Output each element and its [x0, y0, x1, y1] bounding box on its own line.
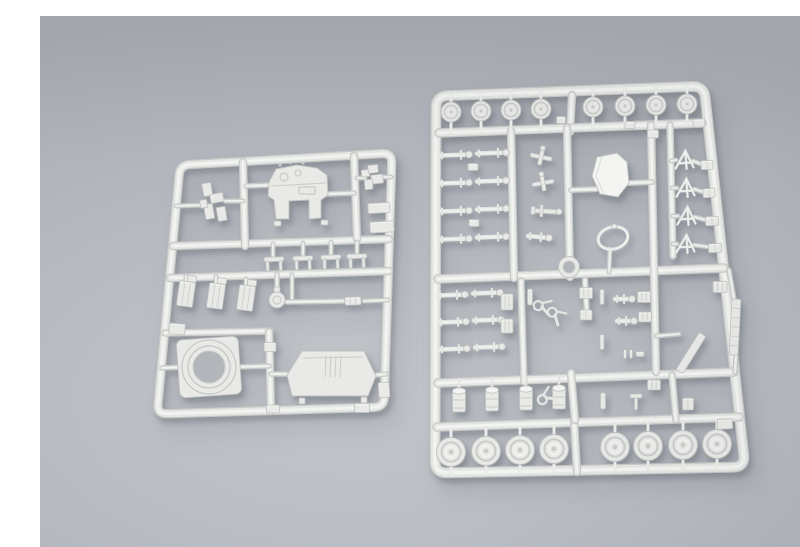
- part-cross: [530, 170, 555, 193]
- part-hatch-ring: [595, 221, 630, 252]
- part-box: [580, 310, 592, 320]
- part-box: [247, 279, 257, 286]
- part-periscope: [321, 255, 341, 270]
- part-periscope: [293, 256, 313, 271]
- part-mount-bracket: [197, 181, 228, 225]
- part-arm: [473, 288, 504, 297]
- part-brace: [676, 332, 706, 374]
- part-box: [693, 119, 705, 128]
- part-stowage-box: [206, 283, 225, 310]
- part-box: [630, 350, 633, 359]
- part-box: [355, 404, 370, 413]
- part-box: [713, 282, 727, 293]
- part-box: [528, 289, 533, 305]
- model-kit-photo: [40, 16, 800, 547]
- part-suspension-arm: [477, 176, 510, 185]
- part-hull-tub: [287, 351, 376, 404]
- part-suspension-arm: [440, 206, 473, 215]
- part-suspension-arm: [477, 148, 510, 157]
- right-sprue: [435, 86, 744, 476]
- part-box: [703, 188, 715, 198]
- part-box: [557, 117, 566, 124]
- part-box: [501, 319, 513, 333]
- part-claw: [532, 296, 553, 315]
- part-box: [638, 292, 651, 303]
- part-idler-ring: [559, 257, 580, 278]
- photo-canvas: [40, 16, 800, 547]
- part-box: [378, 382, 390, 398]
- part-box: [636, 352, 644, 357]
- part-box: [625, 122, 635, 129]
- part-stowage-box: [176, 281, 195, 308]
- part-box: [624, 350, 627, 359]
- left-sprue: [158, 154, 394, 414]
- part-suspension-arm: [440, 234, 473, 243]
- part-suspension-arm: [477, 232, 510, 241]
- part-box: [648, 380, 661, 390]
- part-plane: [531, 204, 563, 218]
- part-panel: [368, 202, 390, 213]
- part-box: [169, 323, 186, 335]
- part-arm: [440, 344, 471, 353]
- part-turret: [268, 161, 328, 226]
- part-stowage-box: [236, 285, 255, 312]
- part-cupola: [269, 287, 285, 308]
- part-box: [469, 220, 479, 227]
- part-arm: [615, 295, 635, 303]
- part-arm: [528, 232, 553, 242]
- part-claw: [545, 303, 567, 325]
- part-arm: [475, 342, 506, 351]
- part-muzzle: [345, 297, 361, 306]
- part-box: [501, 294, 513, 310]
- part-box: [264, 343, 276, 352]
- part-small-fitting: [361, 164, 384, 190]
- part-suspension-arm: [440, 178, 473, 187]
- part-box: [639, 312, 652, 322]
- part-suspension-arm: [440, 150, 473, 159]
- part-box: [600, 335, 604, 350]
- part-box: [701, 160, 713, 170]
- part-periscope: [264, 257, 284, 272]
- part-box: [580, 288, 593, 299]
- part-gun-barrel: [287, 301, 343, 302]
- part-arm: [438, 290, 469, 299]
- part-arm: [439, 317, 470, 326]
- part-box: [187, 275, 197, 282]
- part-arm: [617, 317, 637, 325]
- part-periscope: [347, 254, 367, 269]
- part-panel: [370, 221, 395, 233]
- part-box: [267, 405, 280, 413]
- part-box: [705, 216, 718, 226]
- part-box: [708, 243, 721, 253]
- part-box: [468, 164, 478, 171]
- part-box: [683, 398, 694, 410]
- part-cross: [529, 143, 555, 167]
- part-turret-ring: [176, 336, 242, 398]
- part-box: [601, 393, 606, 409]
- part-tstem: [630, 394, 642, 410]
- part-suspension-arm: [477, 204, 510, 213]
- part-box: [648, 130, 659, 138]
- part-arm: [474, 315, 505, 324]
- part-box: [717, 419, 733, 430]
- part-box: [600, 290, 604, 305]
- part-box: [217, 277, 227, 284]
